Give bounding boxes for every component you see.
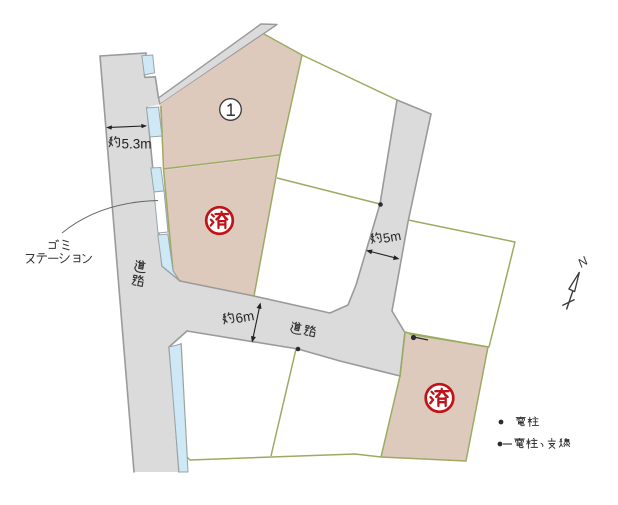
- svg-text:5.3m: 5.3m: [122, 136, 152, 151]
- svg-text:6m: 6m: [234, 308, 255, 326]
- svg-text:5m: 5m: [382, 228, 402, 246]
